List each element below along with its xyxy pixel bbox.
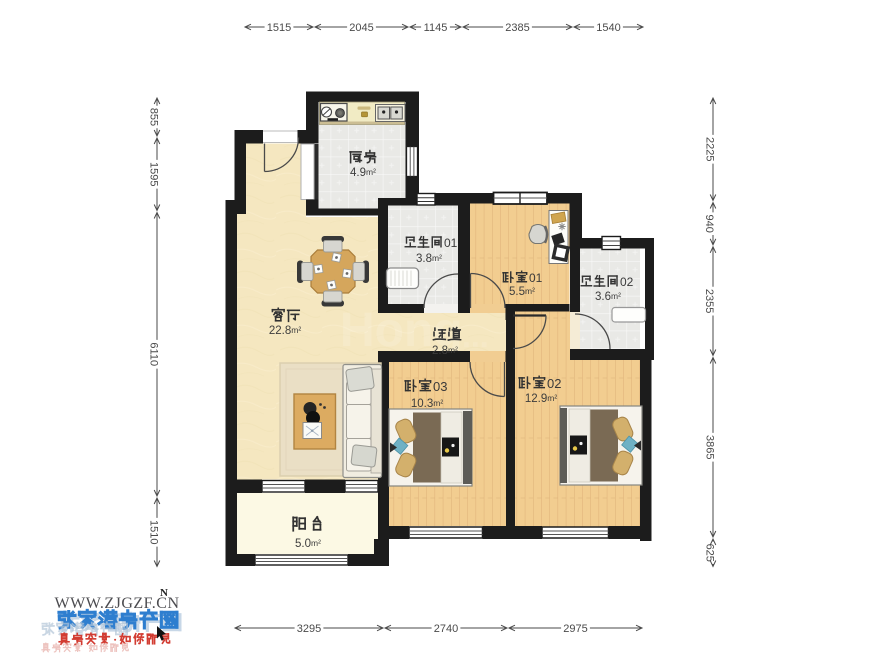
svg-text:02: 02 [547,376,561,391]
svg-text:6110: 6110 [147,342,159,366]
svg-text:1145: 1145 [424,22,448,34]
svg-text:02: 02 [620,275,634,289]
svg-text:...: ... [462,318,489,354]
svg-text:855: 855 [147,108,159,126]
svg-text:2355: 2355 [703,289,715,313]
svg-text:1515: 1515 [267,22,291,34]
svg-text:03: 03 [433,379,447,394]
svg-text:625: 625 [703,544,715,562]
svg-text:1595: 1595 [147,162,159,186]
svg-text:2385: 2385 [505,22,529,34]
svg-text:WWW.ZJGZF.CN: WWW.ZJGZF.CN [54,595,179,612]
svg-text:3865: 3865 [703,435,715,459]
svg-text:940: 940 [703,214,715,232]
svg-text:2740: 2740 [434,623,458,635]
svg-text:2045: 2045 [349,22,373,34]
svg-text:3295: 3295 [297,623,321,635]
svg-text:2225: 2225 [703,137,715,161]
svg-text:01: 01 [529,271,543,285]
svg-text:1540: 1540 [596,22,620,34]
svg-text:2975: 2975 [563,623,587,635]
svg-text:01: 01 [444,236,458,250]
svg-text:1510: 1510 [147,520,159,544]
